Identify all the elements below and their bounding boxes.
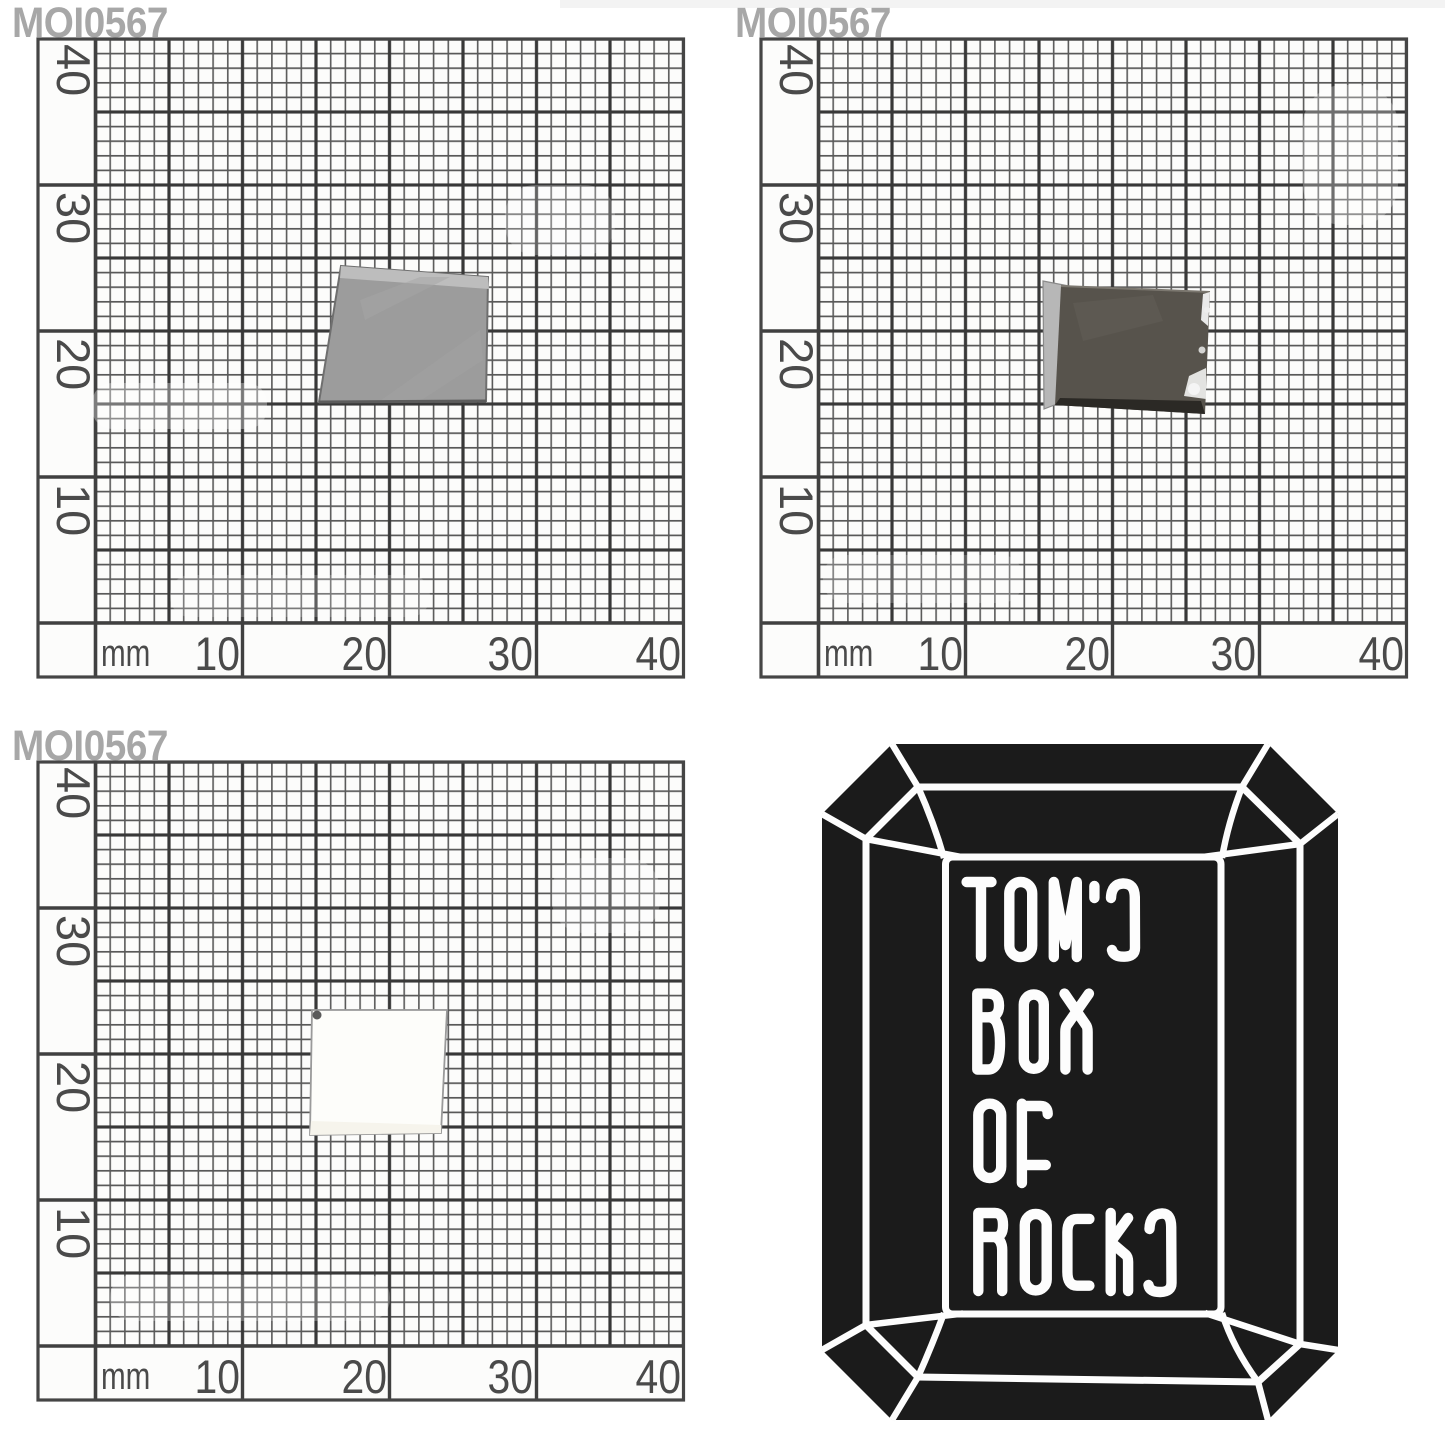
svg-text:MOI0567: MOI0567 [12, 0, 168, 46]
svg-text:MOI0567: MOI0567 [12, 723, 168, 769]
